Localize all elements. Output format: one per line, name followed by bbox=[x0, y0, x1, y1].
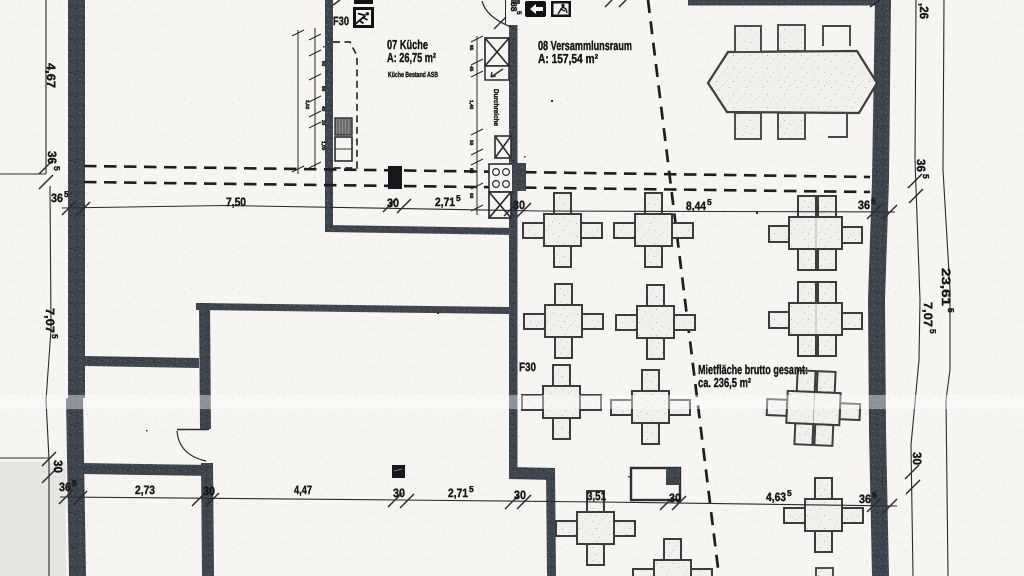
svg-text:2,73: 2,73 bbox=[135, 483, 155, 497]
svg-text:7,07: 7,07 bbox=[43, 308, 57, 333]
svg-text:30: 30 bbox=[393, 486, 405, 500]
svg-text:8,44: 8,44 bbox=[686, 199, 706, 213]
svg-text:30: 30 bbox=[669, 491, 681, 505]
svg-text:,26: ,26 bbox=[917, 3, 931, 19]
svg-text:5: 5 bbox=[515, 11, 522, 15]
svg-text:3,02: 3,02 bbox=[304, 100, 310, 110]
svg-text:7,50: 7,50 bbox=[226, 195, 246, 209]
svg-text:60: 60 bbox=[320, 61, 326, 67]
svg-text:5: 5 bbox=[50, 334, 60, 339]
svg-text:36: 36 bbox=[914, 159, 928, 172]
svg-text:23,61: 23,61 bbox=[939, 268, 953, 306]
svg-text:1,40: 1,40 bbox=[468, 100, 474, 110]
svg-text:A: 26,75 m²: A: 26,75 m² bbox=[387, 50, 436, 65]
svg-text:A: 157,54 m²: A: 157,54 m² bbox=[538, 51, 599, 66]
svg-text:2,71: 2,71 bbox=[435, 195, 455, 209]
svg-text:4,47: 4,47 bbox=[294, 483, 312, 497]
svg-text:F30: F30 bbox=[333, 14, 349, 28]
svg-text:36: 36 bbox=[858, 198, 870, 212]
svg-text:7,07: 7,07 bbox=[921, 302, 935, 327]
svg-text:65: 65 bbox=[468, 45, 474, 51]
svg-text:36: 36 bbox=[51, 191, 63, 205]
svg-text:ca. 236,5 m²: ca. 236,5 m² bbox=[698, 375, 751, 390]
svg-text:30: 30 bbox=[203, 484, 215, 498]
svg-text:5: 5 bbox=[928, 329, 938, 334]
svg-text:5: 5 bbox=[921, 174, 931, 179]
svg-text:1,00: 1,00 bbox=[320, 141, 326, 151]
svg-text:5: 5 bbox=[64, 189, 69, 199]
svg-text:4,67: 4,67 bbox=[44, 63, 58, 88]
svg-text:5: 5 bbox=[469, 484, 474, 494]
svg-text:50: 50 bbox=[468, 140, 474, 146]
svg-text:2,71: 2,71 bbox=[448, 486, 468, 500]
svg-text:5: 5 bbox=[946, 308, 956, 313]
svg-text:30: 30 bbox=[387, 196, 399, 210]
svg-text:60: 60 bbox=[468, 168, 474, 174]
svg-text:60: 60 bbox=[468, 193, 474, 199]
svg-text:45: 45 bbox=[468, 66, 474, 72]
svg-text:30: 30 bbox=[514, 488, 526, 502]
svg-text:5: 5 bbox=[871, 196, 876, 206]
svg-text:Küche Bestand ASB: Küche Bestand ASB bbox=[388, 70, 438, 79]
svg-text:4,63: 4,63 bbox=[766, 490, 786, 504]
svg-text:60: 60 bbox=[320, 86, 326, 92]
svg-text:30: 30 bbox=[910, 452, 924, 465]
svg-text:5: 5 bbox=[872, 490, 877, 500]
svg-text:F30: F30 bbox=[519, 360, 536, 374]
svg-text:30: 30 bbox=[513, 198, 525, 212]
svg-text:5: 5 bbox=[52, 166, 62, 171]
svg-text:36: 36 bbox=[45, 151, 59, 164]
svg-text:36: 36 bbox=[859, 492, 871, 506]
svg-text:5: 5 bbox=[787, 488, 792, 498]
svg-text:Durchreiche: Durchreiche bbox=[492, 89, 500, 126]
svg-text:20: 20 bbox=[320, 120, 326, 126]
svg-text:40: 40 bbox=[320, 106, 326, 112]
svg-text:5: 5 bbox=[707, 197, 712, 207]
svg-text:5: 5 bbox=[72, 478, 77, 488]
svg-text:3,51: 3,51 bbox=[587, 489, 606, 503]
svg-text:5: 5 bbox=[456, 193, 461, 203]
svg-text:30: 30 bbox=[51, 460, 65, 473]
svg-text:36: 36 bbox=[59, 480, 71, 494]
